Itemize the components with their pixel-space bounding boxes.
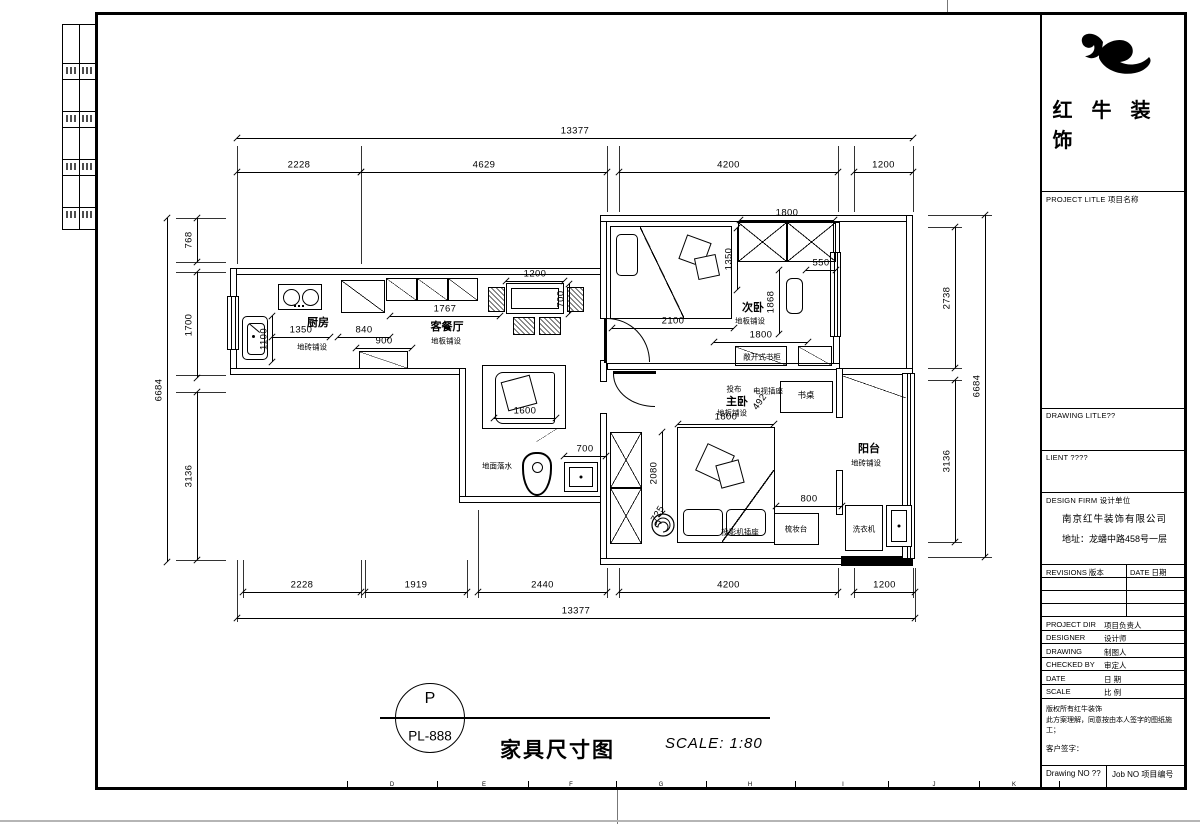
- extension-line: [478, 510, 479, 598]
- extension-line: [619, 568, 620, 598]
- dim-label: 6684: [154, 379, 165, 402]
- cabinet: [448, 278, 478, 301]
- chair: [513, 317, 535, 335]
- dimension-line: [494, 418, 556, 419]
- dim-label: 13377: [561, 126, 589, 137]
- strip-text: [82, 211, 93, 218]
- dimension-line: [678, 424, 774, 425]
- dimension-line: [237, 138, 913, 139]
- dimension-line: [361, 172, 607, 173]
- tv-cabinet: [359, 351, 408, 369]
- extension-line: [928, 380, 962, 381]
- open-bookcase: [798, 346, 832, 366]
- fridge: [341, 280, 385, 313]
- row-label-cn: 日 期: [1104, 674, 1121, 685]
- signoff-rows: PROJECT DIR项目负责人 DESIGNER设计师 DRAWING制图人 …: [1042, 617, 1187, 699]
- shower-drain: [564, 462, 598, 492]
- dim-label: 4200: [717, 160, 740, 171]
- client-signature-label: 客户签字：: [1046, 743, 1183, 754]
- dim-label: 3136: [184, 465, 195, 488]
- grid-tick: [1059, 781, 1060, 789]
- room-label: 客餐厅: [431, 318, 464, 334]
- row-label-en: DATE: [1046, 674, 1065, 683]
- wall-kitchen-bottom: [230, 368, 466, 375]
- design-firm-section: DESIGN FIRM 设计单位 南京红牛装饰有限公司 地址：龙蟠中路458号一…: [1042, 493, 1187, 565]
- extension-line: [176, 272, 226, 273]
- grid-tick: [528, 781, 529, 789]
- extension-line: [237, 560, 238, 622]
- dimension-line: [612, 328, 734, 329]
- dim-label: 1200: [873, 580, 896, 591]
- wall-top-left: [230, 268, 607, 275]
- dimension-line: [237, 618, 915, 619]
- strip-line: [63, 63, 95, 64]
- dim-label: 2440: [531, 580, 554, 591]
- dim-label: 1700: [184, 314, 195, 337]
- extension-line: [838, 568, 839, 598]
- grid-letter: K: [1012, 782, 1016, 788]
- dim-label: 2080: [649, 462, 660, 485]
- dimension-line: [167, 218, 168, 562]
- dimension-line: [714, 342, 808, 343]
- title-block: 红牛装饰 PROJECT LITLE 项目名称 DRAWING LITLE?? …: [1040, 12, 1187, 790]
- dimension-line: [955, 227, 956, 368]
- sliding-panel: [843, 376, 906, 398]
- dimension-line: [272, 337, 330, 338]
- dim-label: 1600: [514, 406, 537, 417]
- red-bull-logo-icon: [1072, 28, 1158, 90]
- extension-line: [176, 375, 226, 376]
- grid-tick: [706, 781, 707, 789]
- bath-door-leaf: [536, 428, 558, 442]
- row-label-en: DESIGNER: [1046, 633, 1085, 642]
- extension-line: [607, 146, 608, 212]
- room-label: 地面落水: [482, 461, 512, 472]
- pillow: [683, 509, 723, 536]
- dimension-line: [619, 172, 838, 173]
- dimension-line: [854, 592, 915, 593]
- dim-label: 4629: [473, 160, 496, 171]
- strip-line: [63, 207, 95, 208]
- signoff-row: SCALE比 例: [1042, 685, 1187, 699]
- copyright-note: 版权所有红牛装饰: [1046, 704, 1183, 714]
- door-bedroom1-leaf: [613, 371, 656, 374]
- revisions-label: REVISIONS 版本: [1046, 567, 1104, 578]
- row-label-cn: 制图人: [1104, 647, 1127, 658]
- revision-row: [1042, 591, 1187, 604]
- drawing-title-label: DRAWING LITLE??: [1046, 411, 1115, 420]
- extension-line: [176, 262, 226, 263]
- dimension-line: [737, 228, 738, 290]
- bubble-number: PL-888: [408, 729, 452, 744]
- extension-line: [361, 146, 362, 264]
- dimension-line: [237, 172, 361, 173]
- title-rule: [380, 717, 770, 719]
- room-label: 地板铺设: [735, 316, 765, 327]
- wall-bath-bottom: [459, 496, 607, 503]
- strip-line: [63, 175, 95, 176]
- job-no-label: Job NO 项目编号: [1112, 769, 1173, 780]
- cabinet: [417, 278, 448, 301]
- room-label: 阳台: [858, 440, 880, 456]
- revisions-divider: [1126, 565, 1127, 617]
- client-label: LIENT ????: [1046, 453, 1088, 462]
- dimension-line: [569, 284, 570, 314]
- dim-label: 2228: [291, 580, 314, 591]
- grid-tick: [795, 781, 796, 789]
- revision-row: [1042, 578, 1187, 591]
- extension-line: [854, 568, 855, 598]
- row-label-en: PROJECT DIR: [1046, 620, 1096, 629]
- brand-name: 红牛装饰: [1053, 96, 1177, 156]
- extension-line: [915, 568, 916, 622]
- drawing-sheet: 1337722284629420012002228191924404200120…: [0, 0, 1200, 824]
- dimension-line: [806, 270, 836, 271]
- revisions-table: REVISIONS 版本 DATE 日期: [1042, 565, 1187, 617]
- margin-revision-strip: [62, 24, 96, 230]
- bubble-mark: P: [425, 690, 436, 708]
- grid-letter: F: [569, 782, 573, 788]
- signoff-row: DATE日 期: [1042, 671, 1187, 685]
- extension-line: [607, 568, 608, 598]
- dim-label: 2228: [288, 160, 311, 171]
- dim-label: 800: [800, 494, 817, 505]
- blanket-decor: [694, 254, 720, 280]
- dimension-line: [478, 592, 607, 593]
- wall-corridor-b: [600, 360, 607, 382]
- dimension-line: [506, 281, 564, 282]
- dim-label: 700: [576, 444, 593, 455]
- grid-tick: [979, 781, 980, 789]
- logo-section: 红牛装饰: [1042, 12, 1187, 192]
- signoff-row: DRAWING制图人: [1042, 644, 1187, 658]
- dimension-line: [854, 172, 913, 173]
- dimension-line: [619, 592, 838, 593]
- room-label: 投布: [727, 384, 742, 395]
- room-label: 次卧: [742, 299, 764, 315]
- dim-label: 1200: [524, 269, 547, 280]
- dimension-line: [662, 432, 663, 514]
- row-label-cn: 项目负责人: [1104, 620, 1142, 631]
- dim-label: 6684: [972, 375, 983, 398]
- dim-label: 4200: [717, 580, 740, 591]
- door-bedroom2-leaf: [604, 318, 607, 363]
- dim-label: 2738: [942, 286, 953, 309]
- extension-line: [176, 392, 226, 393]
- dim-label: 2100: [662, 316, 685, 327]
- dimension-line: [197, 218, 198, 262]
- extension-line: [619, 146, 620, 212]
- grid-tick: [347, 781, 348, 789]
- wall-corridor-a: [600, 215, 607, 319]
- grid-letter: I: [842, 782, 844, 788]
- wall-balcony-left-a: [836, 368, 843, 418]
- firm-label: DESIGN FIRM 设计单位: [1046, 495, 1130, 506]
- dim-label: 1767: [434, 304, 457, 315]
- window-kitchen: [227, 296, 239, 350]
- extension-line: [176, 218, 226, 219]
- room-label: 投影机插座: [721, 527, 759, 538]
- grid-letter: H: [748, 782, 752, 788]
- extension-line: [928, 227, 962, 228]
- dimension-line: [390, 316, 500, 317]
- dim-label: 900: [375, 336, 392, 347]
- row-label-en: SCALE: [1046, 687, 1071, 696]
- chair: [488, 287, 505, 312]
- revision-row: [1042, 604, 1187, 617]
- client-section: LIENT ????: [1042, 451, 1187, 493]
- stove: [278, 284, 322, 310]
- dim-label: 768: [184, 231, 195, 248]
- dimension-line: [955, 380, 956, 542]
- strip-text: [66, 115, 77, 122]
- sheet-title: 家具尺寸图: [500, 734, 615, 764]
- strip-text: [82, 115, 93, 122]
- extension-line: [928, 368, 962, 369]
- grid-letter: J: [933, 782, 936, 788]
- copyright-section: 版权所有红牛装饰 此方案理解，同意按由本人签字的图纸施工； 客户签字：: [1042, 699, 1187, 766]
- extension-line: [838, 146, 839, 212]
- dim-label: 1350: [724, 248, 735, 271]
- dimension-line: [776, 506, 842, 507]
- scale-note: SCALE: 1:80: [665, 735, 763, 752]
- dimension-line: [356, 348, 412, 349]
- project-section: PROJECT LITLE 项目名称: [1042, 192, 1187, 409]
- signoff-row: CHECKED BY审定人: [1042, 658, 1187, 672]
- drawing-no-label: Drawing NO ??: [1046, 769, 1101, 778]
- row-label-cn: 比 例: [1104, 687, 1121, 698]
- dimension-line: [272, 316, 273, 362]
- dim-label: 1800: [776, 208, 799, 219]
- floor-drain: [886, 505, 912, 547]
- grid-letter: D: [390, 782, 394, 788]
- strip-line: [63, 159, 95, 160]
- grid-tick: [616, 781, 617, 789]
- project-label: PROJECT LITLE 项目名称: [1046, 194, 1139, 205]
- wall-bath-left: [459, 368, 466, 503]
- strip-text: [66, 67, 77, 74]
- pillow: [616, 234, 638, 276]
- room-label: 敞开式书柜: [743, 352, 781, 363]
- room-label: 地板铺设: [431, 336, 461, 347]
- wall-right-upper: [906, 215, 913, 375]
- room-label: 书桌: [797, 389, 814, 401]
- dim-label: 550: [812, 258, 829, 269]
- dim-label: 1919: [405, 580, 428, 591]
- dimension-line: [985, 215, 986, 557]
- strip-line: [63, 127, 95, 128]
- row-label-en: CHECKED BY: [1046, 660, 1095, 669]
- wardrobe: [738, 222, 787, 262]
- wall-corridor-c: [600, 413, 607, 565]
- dim-label: 1200: [872, 160, 895, 171]
- dim-label: 700: [556, 290, 567, 307]
- row-label-en: DRAWING: [1046, 647, 1082, 656]
- grid-tick: [437, 781, 438, 789]
- extension-line: [854, 146, 855, 212]
- strip-text: [82, 163, 93, 170]
- fold-mark: [947, 0, 948, 12]
- room-label: 厨房: [307, 314, 329, 330]
- room-label: 地砖铺设: [851, 458, 881, 469]
- room-label: 梳妆台: [785, 524, 808, 535]
- blanket-fold: [640, 227, 684, 318]
- dimension-line: [779, 270, 780, 334]
- sheet-edge: [0, 820, 1200, 822]
- grid-letter: G: [659, 782, 664, 788]
- dim-label: 13377: [562, 606, 590, 617]
- window-bedroom2: [830, 252, 841, 337]
- agreement-note: 此方案理解，同意按由本人签字的图纸施工；: [1046, 715, 1183, 735]
- strip-text: [82, 67, 93, 74]
- cabinet: [386, 278, 417, 301]
- grid-tick: [888, 781, 889, 789]
- number-divider: [1106, 766, 1107, 790]
- extension-line: [928, 542, 962, 543]
- row-label-cn: 审定人: [1104, 660, 1127, 671]
- wardrobe: [610, 488, 642, 544]
- room-label: 电视插座: [753, 386, 783, 397]
- wardrobe: [787, 222, 836, 262]
- number-section: Drawing NO ?? Job NO 项目编号: [1042, 766, 1187, 790]
- dimension-line: [564, 456, 606, 457]
- strip-line: [63, 79, 95, 80]
- dimension-line: [243, 592, 361, 593]
- strip-line: [63, 111, 95, 112]
- dimension-line: [365, 592, 467, 593]
- firm-name: 南京红牛装饰有限公司: [1042, 511, 1187, 525]
- fold-mark: [617, 790, 618, 824]
- room-label: 地砖铺设: [297, 342, 327, 353]
- room-label: 地板铺设: [717, 408, 747, 419]
- dimension-line: [197, 392, 198, 560]
- dim-label: 3136: [942, 450, 953, 473]
- extension-line: [176, 560, 226, 561]
- dim-label: 840: [355, 325, 372, 336]
- dimension-line: [197, 272, 198, 378]
- date-col-label: DATE 日期: [1130, 567, 1167, 578]
- dim-label: 1800: [750, 330, 773, 341]
- row-label-cn: 设计师: [1104, 633, 1127, 644]
- firm-address: 地址：龙蟠中路458号一层: [1042, 532, 1187, 545]
- dim-label: 1100: [259, 328, 270, 350]
- chair: [539, 317, 561, 335]
- wardrobe: [610, 432, 642, 488]
- dim-label: 1868: [766, 291, 777, 314]
- strip-text: [66, 163, 77, 170]
- small-cabinet: [786, 278, 803, 314]
- signoff-row: DESIGNER设计师: [1042, 631, 1187, 645]
- extension-line: [913, 146, 914, 212]
- dimension-line: [740, 220, 834, 221]
- signoff-row: PROJECT DIR项目负责人: [1042, 617, 1187, 631]
- extension-line: [237, 146, 238, 264]
- strip-text: [66, 211, 77, 218]
- grid-letter: E: [482, 782, 486, 788]
- room-label: 洗衣机: [853, 524, 876, 535]
- drawing-title-section: DRAWING LITLE??: [1042, 409, 1187, 451]
